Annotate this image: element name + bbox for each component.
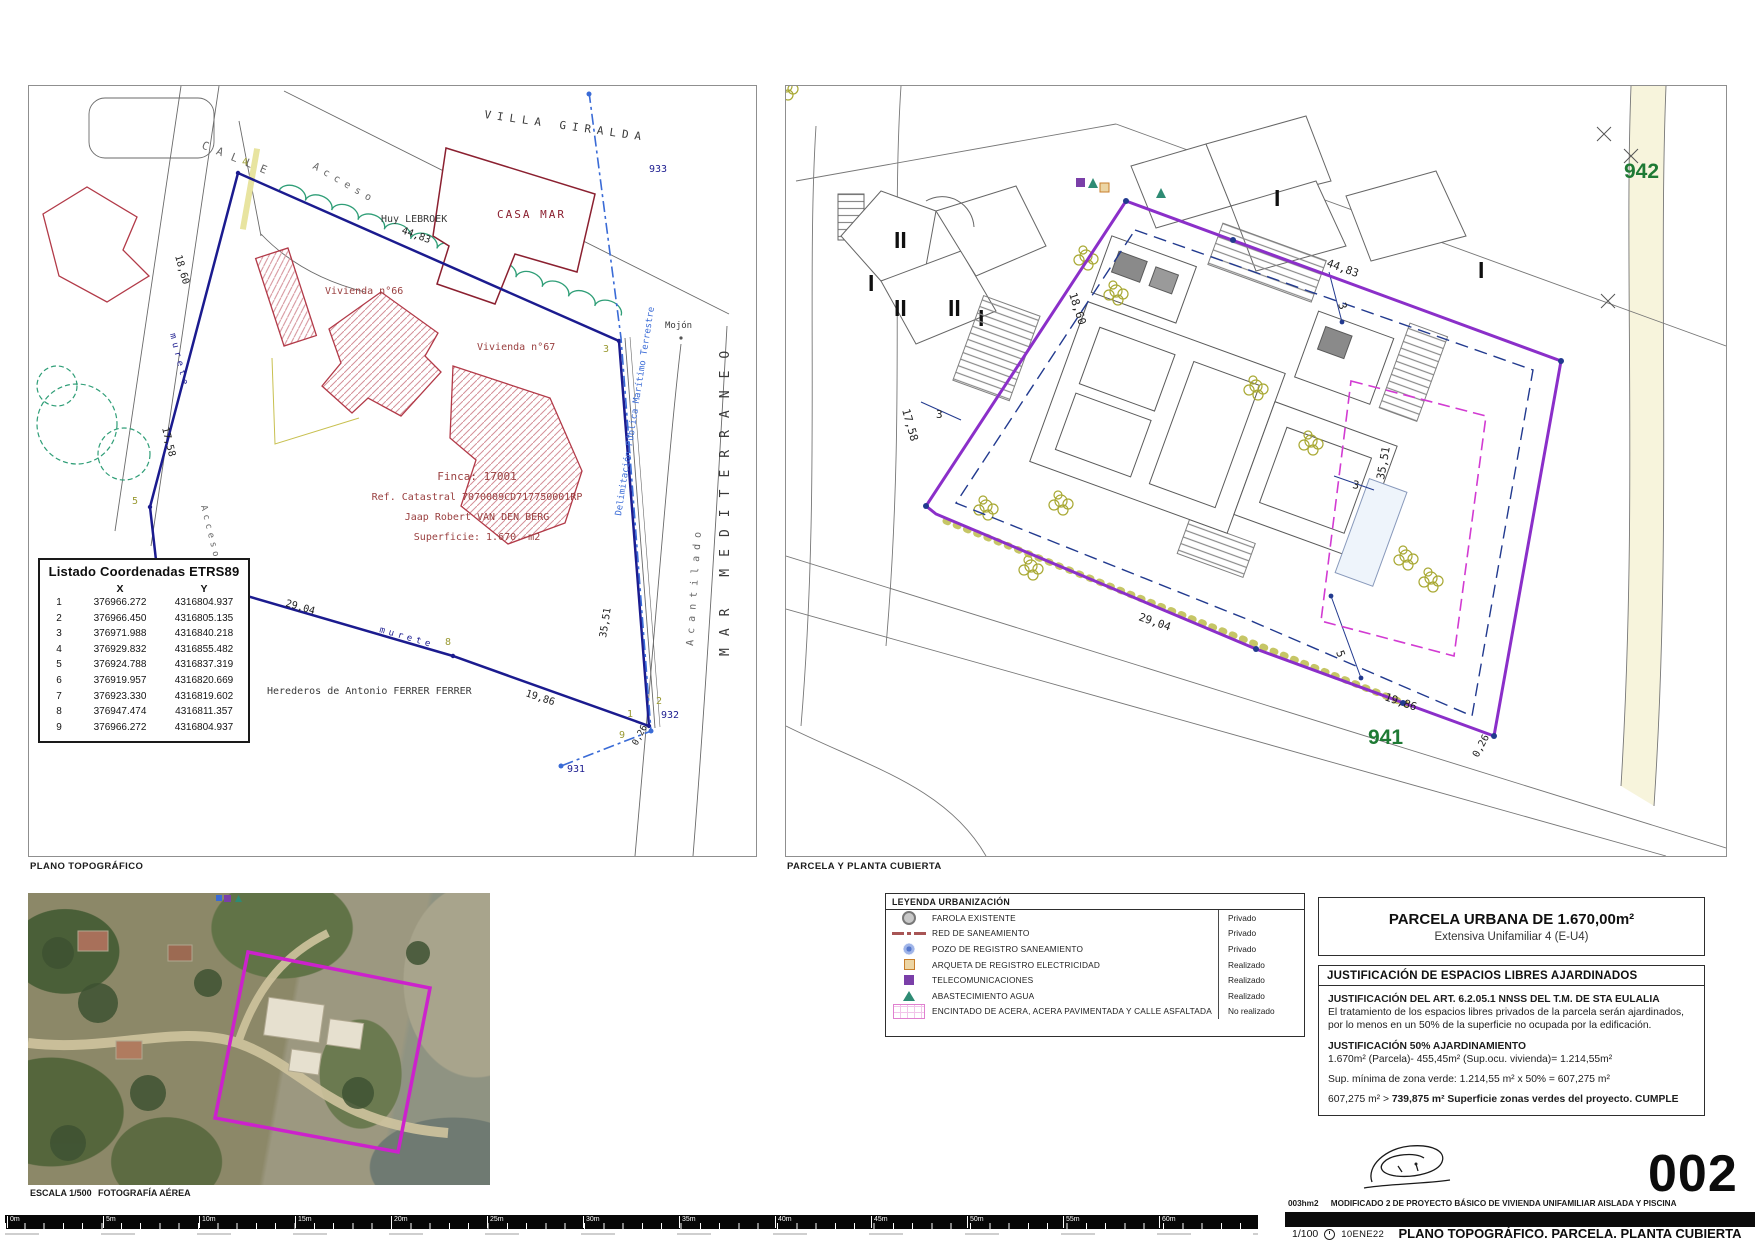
legend-status: Realizado — [1218, 957, 1304, 973]
cell-y: 4316819.602 — [162, 689, 246, 705]
cell-y: 4316840.218 — [162, 626, 246, 642]
scale-bar-subtext-marks — [5, 1233, 1258, 1235]
roman-II: II — [894, 227, 907, 253]
murete-left-label: murete — [167, 332, 190, 389]
calc-line-1: 1.670m² (Parcela)- 455,45m² (Sup.ocu. vi… — [1328, 1053, 1695, 1066]
hito-933: 933 — [649, 164, 667, 175]
cell-x: 376919.957 — [78, 673, 162, 689]
legend-status: Realizado — [1218, 988, 1304, 1004]
table-row: 4376929.8324316855.482 — [40, 642, 248, 658]
dim-0-26: 0,26 — [631, 724, 650, 748]
legend-row: ENCINTADO DE ACERA, ACERA PAVIMENTADA Y … — [886, 1004, 1304, 1020]
building-neighbor-west — [43, 187, 149, 302]
legend-row: TELECOMUNICACIONES Realizado — [886, 972, 1304, 988]
hito-932: 932 — [661, 710, 679, 721]
vertex-5: 5 — [132, 496, 138, 507]
roman-II: II — [948, 295, 961, 321]
dim-19-86: 19,86 — [1383, 691, 1419, 714]
water-supply-icon — [903, 991, 915, 1001]
roman-I: I — [1478, 257, 1484, 283]
building-access-strip — [256, 248, 317, 346]
scale-tick-label: 55m — [1063, 1216, 1080, 1223]
calc-line-3-bold: 739,875 m² Superficie zonas verdes del p… — [1392, 1094, 1679, 1105]
cell-x: 376966.450 — [78, 611, 162, 627]
setback-5: 5 — [1333, 649, 1347, 660]
aerial-trees — [42, 937, 430, 1161]
plan-sheet: VILLA GIRALDA CALLE Acceso Acceso CASA M… — [0, 0, 1755, 1240]
table-row: 8376947.4744316811.357 — [40, 704, 248, 720]
acceso-top-label: Acceso — [311, 161, 379, 207]
col-n — [40, 583, 78, 595]
scale-tick-label: 20m — [391, 1216, 408, 1223]
legend-label: FAROLA EXISTENTE — [932, 913, 1218, 923]
drawing-date: 10ENE22 — [1341, 1229, 1384, 1240]
legend-label: RED DE SANEAMIENTO — [932, 928, 1218, 938]
cell-x: 376947.474 — [78, 704, 162, 720]
vertex-8: 8 — [445, 637, 451, 648]
scale-tick-label: 35m — [679, 1216, 696, 1223]
cell-n: 3 — [40, 626, 78, 642]
vertex-1: 1 — [627, 709, 633, 720]
legend-status: Realizado — [1218, 972, 1304, 988]
legend-row: ABASTECIMIENTO AGUA Realizado — [886, 988, 1304, 1004]
mojon-label: Mojón — [665, 320, 692, 331]
scale-tick-label: 10m — [199, 1216, 216, 1223]
table-row: 9376966.2724316804.937 — [40, 720, 248, 736]
propietario: Jaap Robert VAN DEN BERG — [405, 512, 550, 523]
table-row: 2376966.4504316805.135 — [40, 611, 248, 627]
cell-x: 376966.272 — [78, 595, 162, 611]
setback-3-left: 3 — [936, 408, 943, 421]
dim-17-58: 17,58 — [899, 407, 921, 442]
legend-status: Privado — [1218, 941, 1304, 957]
dpmt-label: Delimitación Pública Marítimo Terrestre — [613, 306, 657, 516]
parcel-subtitle: Extensiva Unifamiliar 4 (E-U4) — [1319, 931, 1704, 943]
acantilado-label: Acantilado — [685, 526, 704, 647]
cell-n: 6 — [40, 673, 78, 689]
legend-label: ENCINTADO DE ACERA, ACERA PAVIMENTADA Y … — [932, 1006, 1218, 1016]
aerial-caption: FOTOGRAFÍA AÉREA — [98, 1188, 191, 1198]
legend-status: Privado — [1218, 926, 1304, 942]
legend-label: POZO DE REGISTRO SANEAMIENTO — [932, 944, 1218, 954]
building-casa-mar — [433, 148, 595, 304]
vivienda-67-label: Vivienda n°67 — [477, 342, 555, 353]
aerial-overlay — [28, 893, 490, 1185]
cell-n: 4 — [40, 642, 78, 658]
dim-35-51: 35,51 — [598, 607, 614, 638]
legend-row: POZO DE REGISTRO SANEAMIENTO Privado — [886, 941, 1304, 957]
legend-row: ARQUETA DE REGISTRO ELECTRICIDAD Realiza… — [886, 957, 1304, 973]
col-y: Y — [162, 583, 246, 595]
table-row: 3376971.9884316840.218 — [40, 626, 248, 642]
mar-mediterraneo-label: MAR MEDITERRANEO — [718, 339, 733, 656]
clock-icon — [1324, 1229, 1335, 1240]
vertex-3: 3 — [603, 344, 609, 355]
paved-sidewalk-icon — [893, 1004, 925, 1019]
roman-II: II — [894, 295, 907, 321]
building-vivienda-66 — [322, 292, 441, 416]
scale-tick-label: 45m — [871, 1216, 888, 1223]
scale-tick-label: 30m — [583, 1216, 600, 1223]
herederos-label: Herederos de Antonio FERRER FERRER — [267, 686, 473, 697]
dim-44-83: 44,83 — [400, 225, 432, 246]
dim-18-60: 18,60 — [172, 254, 191, 286]
acceso-left-label: Acceso — [198, 504, 221, 561]
neighbor-buildings-north — [1131, 116, 1466, 271]
parcel-plan-drawing: II I II II I I I — [785, 85, 1727, 857]
villa-giralda-label: VILLA GIRALDA — [484, 108, 648, 144]
project-name: MODIFICADO 2 DE PROYECTO BÁSICO DE VIVIE… — [1331, 1199, 1677, 1208]
aerial-scale-label: ESCALA 1/500 — [30, 1188, 92, 1198]
cell-x: 376929.832 — [78, 642, 162, 658]
coordinates-table-header: X Y — [40, 583, 248, 595]
cell-n: 7 — [40, 689, 78, 705]
finca-number: Finca: 17001 — [437, 470, 516, 483]
calc-line-2: Sup. mínima de zona verde: 1.214,55 m² x… — [1328, 1073, 1695, 1086]
cell-y: 4316811.357 — [162, 704, 246, 720]
scale-tick-label: 5m — [103, 1216, 116, 1223]
cell-x: 376971.988 — [78, 626, 162, 642]
farola-icon — [902, 911, 916, 925]
table-row: 6376919.9574316820.669 — [40, 673, 248, 689]
aerial-utility-icons — [216, 895, 242, 902]
art-title: JUSTIFICACIÓN DEL ART. 6.2.05.1 NNSS DEL… — [1328, 993, 1695, 1006]
vertex-4: 4 — [242, 157, 248, 168]
cell-y: 4316837.319 — [162, 657, 246, 673]
right-plan-caption: PARCELA Y PLANTA CUBIERTA — [787, 861, 942, 872]
justification-body: JUSTIFICACIÓN DEL ART. 6.2.05.1 NNSS DEL… — [1319, 986, 1704, 1115]
scale-tick-label: 0m — [7, 1216, 20, 1223]
cell-n: 8 — [40, 704, 78, 720]
justification-header: JUSTIFICACIÓN DE ESPACIOS LIBRES AJARDIN… — [1319, 966, 1704, 986]
trees — [37, 366, 150, 480]
parcel-info-box: PARCELA URBANA DE 1.670,00m² Extensiva U… — [1318, 897, 1705, 956]
sheet-number: 002 — [1648, 1148, 1738, 1200]
electricity-icon — [1100, 183, 1109, 192]
manhole-icon — [903, 943, 915, 955]
cell-n: 9 — [40, 720, 78, 736]
telecom-icon — [1076, 178, 1085, 187]
dim-0-26: 0,26 — [1471, 733, 1492, 759]
dim-29-04: 29,04 — [1137, 611, 1173, 634]
cell-y: 4316855.482 — [162, 642, 246, 658]
drawing-scale: 1/100 — [1292, 1228, 1318, 1240]
aerial-roads — [28, 933, 448, 1133]
cell-y: 4316804.937 — [162, 595, 246, 611]
graphic-scale-bar: 0m 5m 10m 15m 20m 25m 30m 35m 40m 45m 50… — [5, 1215, 1258, 1229]
dim-29-04: 29,04 — [284, 598, 316, 617]
calc-title: JUSTIFICACIÓN 50% AJARDINAMIENTO — [1328, 1040, 1695, 1053]
sheet-title: PLANO TOPOGRÁFICO. PARCELA. PLANTA CUBIE… — [1390, 1226, 1750, 1240]
huy-lebroek-label: Huy LEBROEK — [381, 214, 447, 225]
coordinates-table: Listado Coordenadas ETRS89 X Y 1376966.2… — [38, 558, 250, 743]
legend-label: ARQUETA DE REGISTRO ELECTRICIDAD — [932, 960, 1218, 970]
parcel-title: PARCELA URBANA DE 1.670,00m² — [1319, 911, 1704, 928]
legend-row: RED DE SANEAMIENTO Privado — [886, 926, 1304, 942]
legend-title: LEYENDA URBANIZACIÓN — [886, 894, 1304, 910]
calc-line-3: 607,275 m² > 739,875 m² Superficie zonas… — [1328, 1093, 1695, 1106]
title-info: 1/100 10ENE22 — [1292, 1228, 1384, 1240]
scale-tick-label: 40m — [775, 1216, 792, 1223]
aerial-photo — [28, 893, 490, 1185]
cell-y: 4316805.135 — [162, 611, 246, 627]
legend-label: ABASTECIMIENTO AGUA — [932, 991, 1218, 1001]
aerial-buildings — [78, 931, 364, 1075]
col-x: X — [78, 583, 162, 595]
scale-tick-label: 15m — [295, 1216, 312, 1223]
cell-x: 376924.788 — [78, 657, 162, 673]
legend-row: FAROLA EXISTENTE Privado — [886, 910, 1304, 926]
cell-y: 4316820.669 — [162, 673, 246, 689]
title-bar — [1285, 1212, 1755, 1227]
urbanization-legend: LEYENDA URBANIZACIÓN FAROLA EXISTENTE Pr… — [885, 893, 1305, 1037]
cell-n: 1 — [40, 595, 78, 611]
vivienda-66-label: Vivienda n°66 — [325, 286, 403, 297]
table-row: 7376923.3304316819.602 — [40, 689, 248, 705]
cell-n: 5 — [40, 657, 78, 673]
scale-tick-label: 50m — [967, 1216, 984, 1223]
sewer-line-icon — [892, 932, 926, 935]
left-plan-caption: PLANO TOPOGRÁFICO — [30, 861, 143, 872]
roman-I: I — [868, 270, 874, 296]
zone-941: 941 — [1368, 726, 1403, 749]
project-line: 003hm2 MODIFICADO 2 DE PROYECTO BÁSICO D… — [1288, 1199, 1677, 1208]
scale-tick-label: 60m — [1159, 1216, 1176, 1223]
table-row: 5376924.7884316837.319 — [40, 657, 248, 673]
roman-I: I — [1274, 185, 1280, 211]
coordinates-table-title: Listado Coordenadas ETRS89 — [40, 564, 248, 579]
water-icon — [1088, 178, 1098, 188]
casa-mar-label: CASA MAR — [497, 208, 566, 221]
legend-status: Privado — [1218, 910, 1304, 926]
vertex-2: 2 — [656, 696, 662, 707]
art-body: El tratamiento de los espacios libres pr… — [1328, 1006, 1695, 1032]
ref-catastral: Ref. Catastral 7070009CD717750001RP — [372, 492, 583, 503]
telecom-icon — [904, 975, 914, 985]
project-code: 003hm2 — [1288, 1199, 1319, 1208]
table-row: 1376966.2724316804.937 — [40, 595, 248, 611]
scale-tick-label: 25m — [487, 1216, 504, 1223]
cell-n: 2 — [40, 611, 78, 627]
cell-y: 4316804.937 — [162, 720, 246, 736]
cell-x: 376966.272 — [78, 720, 162, 736]
justification-box: JUSTIFICACIÓN DE ESPACIOS LIBRES AJARDIN… — [1318, 965, 1705, 1116]
legend-label: TELECOMUNICACIONES — [932, 975, 1218, 985]
calc-line-3-normal: 607,275 m² > — [1328, 1094, 1392, 1105]
dim-17-58: 17,58 — [159, 426, 177, 458]
vertex-9: 9 — [619, 730, 625, 741]
superficie: Superficie: 1.670.-m2 — [414, 532, 540, 543]
electric-box-icon — [904, 959, 915, 970]
legend-status: No realizado — [1218, 1004, 1304, 1020]
architect-signature — [1358, 1138, 1468, 1198]
cell-x: 376923.330 — [78, 689, 162, 705]
zone-942: 942 — [1624, 160, 1659, 183]
hito-931: 931 — [567, 764, 585, 775]
